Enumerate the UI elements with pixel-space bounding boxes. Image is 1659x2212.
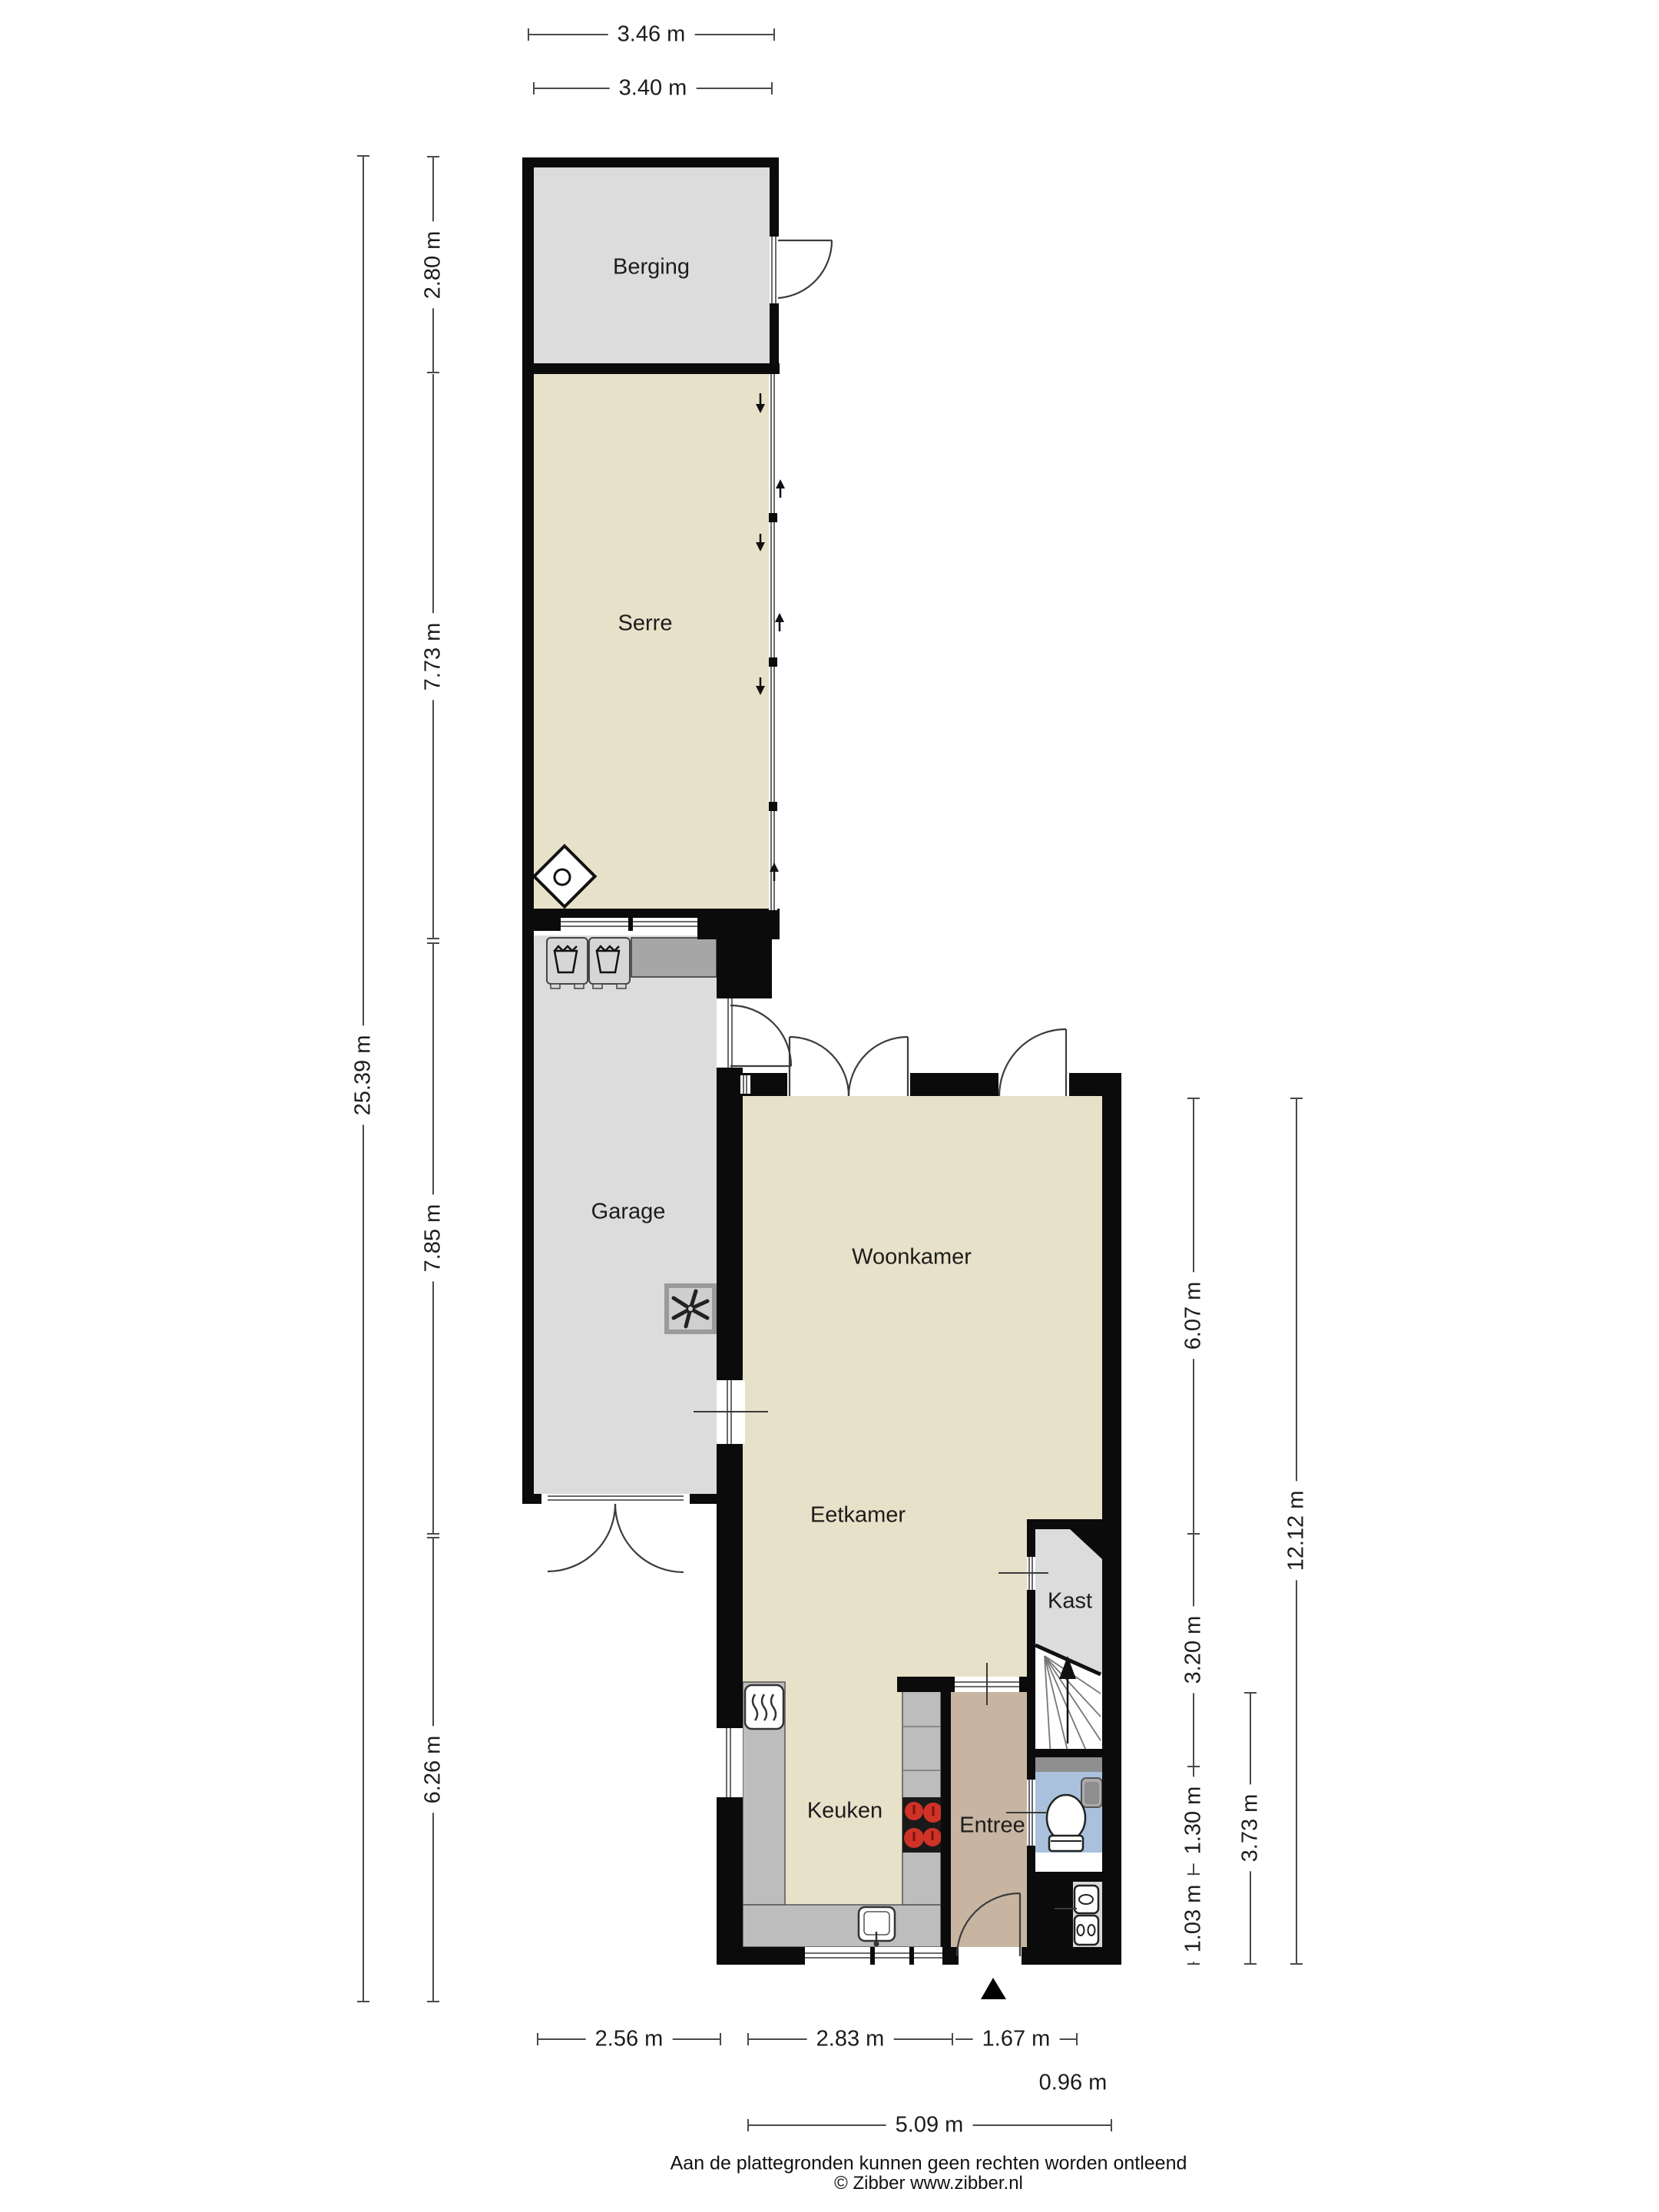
sink-icon: [859, 1907, 895, 1947]
berging-door: [778, 240, 832, 298]
serre-floor: [534, 374, 769, 910]
toilet-icon: [1047, 1795, 1085, 1851]
dimension-label: 3.40 m: [610, 76, 697, 101]
woonkamer-single-door: [999, 1029, 1066, 1096]
dimension-label: 12.12 m: [1284, 1482, 1310, 1581]
room-label-garage: Garage: [591, 1200, 666, 1225]
dimension-label: 1.03 m: [1181, 1876, 1207, 1962]
dimension-label: 1.67 m: [973, 2027, 1060, 2052]
toilet-shelf: [1035, 1757, 1102, 1772]
dimension-label: 5.09 m: [886, 2113, 973, 2138]
eetkamer-floor: [743, 1519, 1027, 1677]
garage-double-door: [548, 1504, 684, 1572]
laundry-door: [730, 1005, 791, 1066]
dimension-label: 1.30 m: [1181, 1777, 1207, 1864]
hob-icon: [902, 1797, 943, 1853]
dimension-label: 3.46 m: [608, 22, 695, 48]
woonkamer-floor: [743, 1096, 1102, 1519]
washing-machine-icon: [589, 938, 630, 988]
hand-basin-icon: [1081, 1778, 1102, 1807]
oven-icon: [745, 1685, 783, 1729]
room-label-eetkamer: Eetkamer: [810, 1503, 906, 1528]
footer-disclaimer: Aan de plattegronden kunnen geen rechten…: [671, 2153, 1187, 2175]
dimension-label: 2.80 m: [421, 222, 446, 309]
room-label-serre: Serre: [618, 611, 673, 637]
dimension-label: 0.96 m: [1030, 2071, 1117, 2096]
floor-plan: Berging Serre Garage Woonkamer Eetkamer …: [0, 0, 1659, 2212]
kitchen-counter-bottom: [743, 1905, 941, 1947]
boiler-fan-icon: [664, 1283, 717, 1334]
floor-plan-drawing: [0, 0, 1659, 2212]
dimension-label: 7.85 m: [421, 1195, 446, 1282]
dimension-label: 6.07 m: [1181, 1273, 1207, 1359]
water-heater-icon: [1075, 1886, 1098, 1945]
entrance-arrow-icon: [981, 1978, 1006, 1999]
dimension-label: 6.26 m: [421, 1727, 446, 1813]
dimension-label: 3.73 m: [1238, 1785, 1263, 1872]
dimension-label: 25.39 m: [351, 1026, 376, 1125]
dimension-label: 3.20 m: [1181, 1607, 1207, 1694]
woonkamer-double-door: [790, 1037, 908, 1096]
kitchen-counter-right: [902, 1684, 941, 1905]
laundry-counter: [631, 938, 717, 977]
room-label-woonkamer: Woonkamer: [852, 1245, 972, 1270]
footer-credit: © Zibber www.zibber.nl: [834, 2173, 1023, 2194]
dimension-label: 2.56 m: [586, 2027, 673, 2052]
room-label-keuken: Keuken: [807, 1799, 882, 1824]
dimension-label: 2.83 m: [807, 2027, 894, 2052]
washing-machine-icon: [547, 938, 588, 988]
dimension-label: 7.73 m: [421, 614, 446, 700]
room-label-berging: Berging: [613, 255, 690, 280]
room-label-kast: Kast: [1048, 1589, 1092, 1614]
room-label-entree: Entree: [959, 1813, 1025, 1839]
